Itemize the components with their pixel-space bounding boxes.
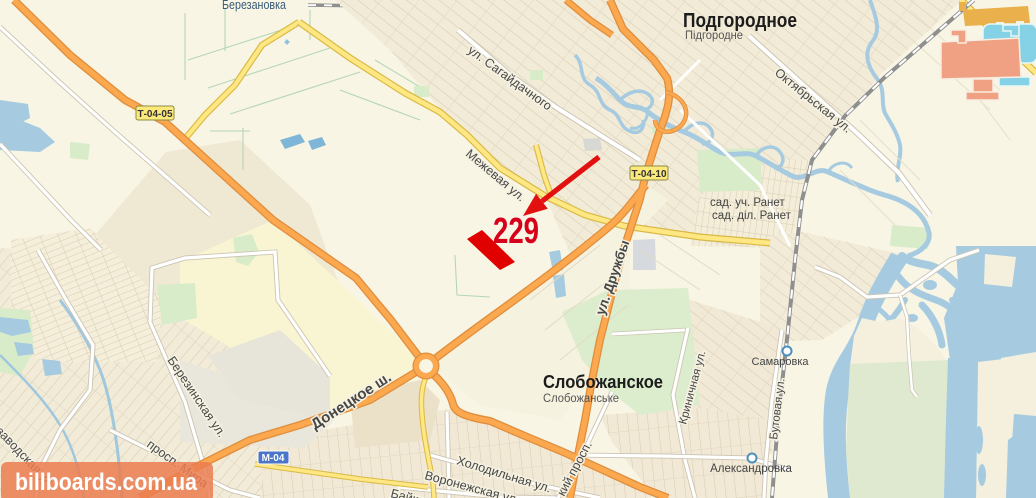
- svg-text:229: 229: [493, 210, 539, 251]
- svg-text:Березановка: Березановка: [222, 0, 287, 12]
- svg-text:Підгородне: Підгородне: [685, 28, 743, 42]
- svg-text:Александровка: Александровка: [710, 463, 792, 475]
- svg-text:Т-04-05: Т-04-05: [137, 109, 172, 120]
- svg-text:billboards.com.ua: billboards.com.ua: [15, 469, 198, 496]
- svg-text:Слобожанське: Слобожанське: [543, 393, 619, 405]
- svg-text:сад. діл. Ранет: сад. діл. Ранет: [712, 210, 792, 222]
- svg-text:сад. уч. Ранет: сад. уч. Ранет: [710, 197, 785, 209]
- svg-text:Т-04-10: Т-04-10: [631, 169, 666, 180]
- svg-text:Слобожанское: Слобожанское: [543, 372, 663, 392]
- svg-text:М-04: М-04: [262, 453, 285, 464]
- svg-text:Самаровка: Самаровка: [751, 356, 809, 368]
